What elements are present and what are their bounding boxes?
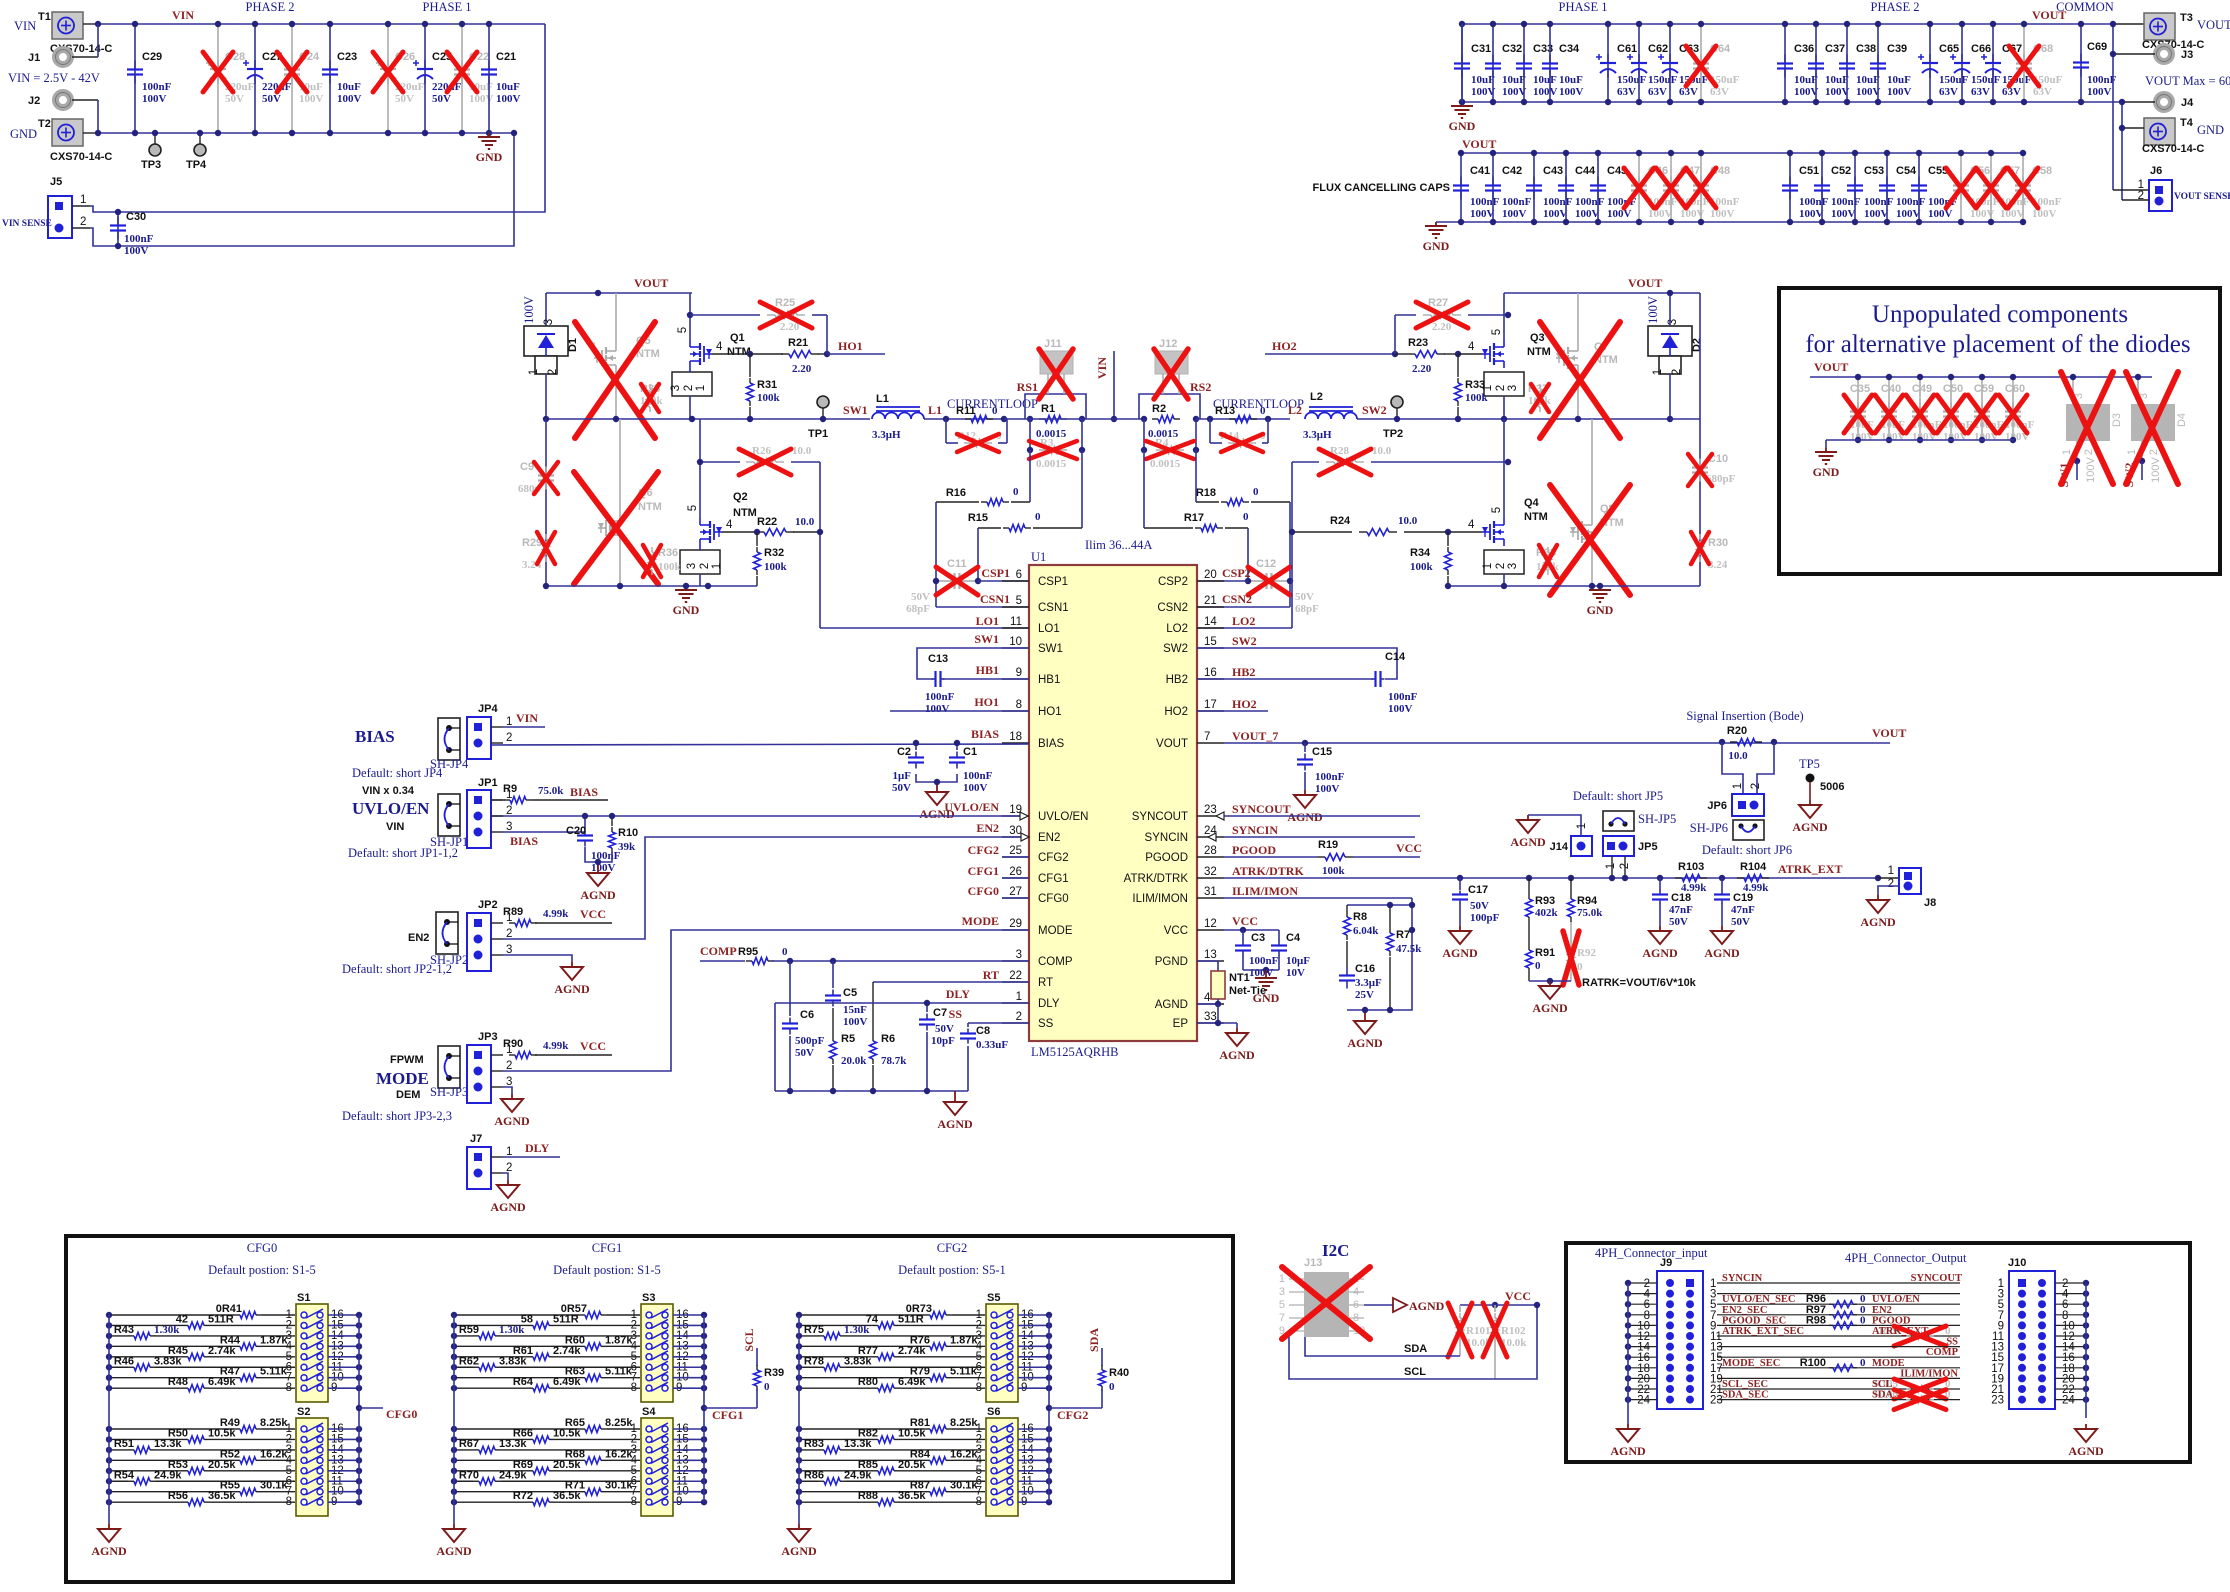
svg-text:100V: 100V [1710, 208, 1735, 220]
svg-text:R104: R104 [1740, 861, 1767, 873]
svg-text:100V: 100V [337, 93, 362, 105]
svg-text:50V: 50V [1669, 916, 1688, 928]
svg-text:0.0015: 0.0015 [1036, 458, 1067, 470]
svg-text:R11: R11 [956, 405, 976, 417]
svg-text:100V: 100V [1470, 208, 1495, 220]
svg-text:13: 13 [1204, 949, 1217, 961]
svg-text:CFG1: CFG1 [592, 1241, 623, 1255]
svg-text:J9: J9 [1660, 1257, 1672, 1269]
svg-text:R67: R67 [459, 1438, 479, 1450]
svg-text:1: 1 [1279, 1273, 1285, 1285]
svg-text:SS: SS [1038, 1018, 1054, 1030]
svg-text:5.11k: 5.11k [950, 1366, 978, 1378]
svg-text:4: 4 [726, 519, 733, 531]
svg-text:R32: R32 [764, 547, 784, 559]
svg-text:VOUT: VOUT [2032, 8, 2066, 22]
svg-text:2.74k: 2.74k [208, 1345, 236, 1357]
svg-text:BIAS: BIAS [1038, 738, 1065, 750]
svg-text:SH-JP6: SH-JP6 [1690, 821, 1728, 835]
svg-text:RT: RT [983, 968, 999, 982]
svg-text:C39: C39 [1887, 43, 1907, 55]
svg-text:ATRK/DTRK: ATRK/DTRK [1232, 864, 1304, 878]
svg-text:PGOOD: PGOOD [1145, 852, 1188, 864]
svg-text:C44: C44 [1575, 165, 1596, 177]
svg-text:CFG2: CFG2 [937, 1241, 968, 1255]
svg-text:23: 23 [1710, 1395, 1723, 1407]
svg-text:AGND: AGND [919, 807, 955, 821]
svg-text:S2: S2 [297, 1406, 310, 1418]
svg-text:75.0k: 75.0k [538, 785, 564, 797]
svg-text:63V: 63V [1710, 86, 1729, 98]
svg-text:1: 1 [1576, 823, 1588, 829]
svg-text:50V: 50V [262, 93, 281, 105]
svg-text:C52: C52 [1831, 165, 1851, 177]
svg-text:1.30k: 1.30k [499, 1324, 525, 1336]
svg-text:VIN: VIN [14, 19, 36, 33]
svg-text:C40: C40 [1881, 383, 1901, 395]
svg-text:S3: S3 [642, 1292, 655, 1304]
svg-text:8.25k: 8.25k [950, 1417, 978, 1429]
svg-text:VIN SENSE: VIN SENSE [2, 219, 52, 229]
svg-text:GND: GND [476, 150, 503, 164]
svg-text:2: 2 [683, 385, 695, 391]
svg-text:AGND: AGND [1610, 1444, 1646, 1458]
svg-text:D2: D2 [1691, 338, 1703, 352]
svg-text:AGND: AGND [436, 1544, 472, 1558]
svg-text:COMP: COMP [1038, 956, 1073, 968]
svg-text:100k: 100k [1410, 561, 1434, 573]
svg-text:1: 1 [1732, 783, 1744, 789]
svg-text:0: 0 [1253, 486, 1259, 498]
svg-text:39k: 39k [618, 841, 636, 853]
svg-text:R100: R100 [1800, 1357, 1826, 1369]
svg-text:R102: R102 [1501, 1325, 1526, 1337]
svg-text:COMP: COMP [1926, 1347, 1959, 1358]
svg-text:100V: 100V [963, 782, 988, 794]
svg-text:28: 28 [1204, 845, 1217, 857]
svg-text:0.0015: 0.0015 [1150, 458, 1181, 470]
svg-text:Q4: Q4 [1524, 497, 1540, 509]
svg-text:100nF: 100nF [1896, 196, 1926, 208]
svg-text:Ilim 36...44A: Ilim 36...44A [1085, 538, 1152, 552]
svg-text:20.5k: 20.5k [208, 1459, 236, 1471]
svg-text:VCC: VCC [1164, 925, 1188, 937]
svg-text:EN2: EN2 [1872, 1305, 1892, 1316]
svg-text:R13: R13 [1215, 405, 1235, 417]
svg-text:R72: R72 [513, 1490, 533, 1502]
svg-text:10uF: 10uF [1856, 74, 1880, 86]
svg-text:CSP2: CSP2 [1158, 576, 1188, 588]
svg-text:C23: C23 [337, 51, 357, 63]
svg-text:5.11k: 5.11k [260, 1366, 288, 1378]
svg-text:3.83k: 3.83k [154, 1355, 182, 1367]
svg-text:J13: J13 [1304, 1257, 1322, 1269]
svg-text:LO1: LO1 [1038, 623, 1060, 635]
svg-text:6.49k: 6.49k [208, 1376, 236, 1388]
svg-text:100V: 100V [1799, 208, 1824, 220]
svg-text:2: 2 [506, 928, 512, 940]
svg-text:100V: 100V [522, 296, 536, 324]
svg-text:VOUT: VOUT [1814, 360, 1848, 374]
svg-text:C20: C20 [566, 825, 586, 837]
svg-text:T4: T4 [2180, 117, 2194, 129]
svg-text:C6: C6 [800, 1009, 814, 1021]
svg-text:C62: C62 [1648, 43, 1668, 55]
svg-text:9: 9 [1016, 667, 1022, 679]
svg-text:0.33uF: 0.33uF [976, 1039, 1008, 1051]
svg-text:Q3: Q3 [1530, 332, 1545, 344]
svg-text:4.99k: 4.99k [1743, 882, 1769, 894]
svg-text:Q1: Q1 [730, 332, 745, 344]
svg-text:R34: R34 [1410, 547, 1431, 559]
svg-text:D3: D3 [2111, 413, 2123, 427]
svg-text:50V: 50V [892, 782, 911, 794]
svg-text:100V: 100V [469, 93, 494, 105]
svg-text:R88: R88 [858, 1490, 878, 1502]
svg-text:C69: C69 [2087, 41, 2107, 53]
svg-text:VIN = 2.5V - 42V: VIN = 2.5V - 42V [8, 71, 100, 85]
svg-text:L1: L1 [876, 393, 889, 405]
svg-text:100k: 100k [757, 392, 781, 404]
svg-text:6.04k: 6.04k [1353, 925, 1379, 937]
svg-text:100nF: 100nF [1543, 196, 1573, 208]
svg-text:C15: C15 [1312, 746, 1332, 758]
svg-text:30.1k: 30.1k [260, 1480, 288, 1492]
svg-text:2: 2 [1495, 385, 1507, 391]
svg-text:VOUT: VOUT [1628, 276, 1662, 290]
svg-text:1: 1 [1605, 863, 1617, 869]
svg-text:78.7k: 78.7k [881, 1055, 907, 1067]
svg-text:100V: 100V [1559, 86, 1584, 98]
svg-text:100V: 100V [1928, 208, 1953, 220]
svg-text:10uF: 10uF [496, 81, 520, 93]
svg-text:AGND: AGND [554, 982, 590, 996]
svg-text:100V: 100V [1648, 208, 1673, 220]
svg-text:24.9k: 24.9k [499, 1469, 527, 1481]
svg-text:0: 0 [764, 1381, 770, 1393]
svg-text:SH-JP5: SH-JP5 [1638, 812, 1676, 826]
svg-text:R103: R103 [1678, 861, 1704, 873]
svg-text:0: 0 [1109, 1381, 1115, 1393]
svg-text:BIAS: BIAS [570, 785, 598, 799]
svg-text:R25: R25 [775, 297, 795, 309]
svg-text:SW2: SW2 [1232, 634, 1257, 648]
svg-text:CFG0: CFG0 [247, 1241, 278, 1255]
svg-text:24.9k: 24.9k [844, 1469, 872, 1481]
svg-text:U1: U1 [1031, 550, 1046, 564]
svg-text:R62: R62 [459, 1355, 479, 1367]
svg-text:HO1: HO1 [838, 339, 863, 353]
svg-text:R5: R5 [841, 1033, 855, 1045]
svg-text:1: 1 [80, 194, 86, 206]
svg-text:AGND: AGND [1442, 946, 1478, 960]
svg-text:NTM: NTM [727, 346, 751, 358]
svg-text:10.0: 10.0 [795, 516, 815, 528]
svg-text:NTM: NTM [636, 348, 660, 360]
svg-text:Default: short JP5: Default: short JP5 [1573, 789, 1663, 803]
svg-text:2: 2 [506, 1060, 512, 1072]
svg-text:AGND: AGND [91, 1544, 127, 1558]
svg-text:2: 2 [506, 805, 512, 817]
svg-text:3.83k: 3.83k [499, 1355, 527, 1367]
svg-text:R54: R54 [114, 1469, 135, 1481]
svg-text:47nF: 47nF [1669, 904, 1693, 916]
svg-text:2: 2 [1016, 1011, 1022, 1023]
svg-text:100V: 100V [1831, 208, 1856, 220]
svg-text:1: 1 [1482, 563, 1494, 569]
svg-text:50V: 50V [911, 591, 930, 603]
svg-text:VOUT_7: VOUT_7 [1232, 729, 1278, 743]
svg-text:2: 2 [1888, 878, 1894, 890]
svg-text:HO2: HO2 [1164, 706, 1188, 718]
svg-text:UVLO/EN_SEC: UVLO/EN_SEC [1722, 1294, 1796, 1305]
svg-text:3: 3 [1507, 563, 1519, 569]
svg-text:SCL: SCL [742, 1328, 756, 1351]
svg-text:J5: J5 [50, 176, 62, 188]
svg-text:MODE_SEC: MODE_SEC [1722, 1358, 1780, 1369]
svg-text:2: 2 [2138, 190, 2144, 202]
svg-text:2: 2 [699, 563, 711, 569]
svg-text:SYNCOUT: SYNCOUT [1911, 1273, 1962, 1284]
svg-text:100nF: 100nF [1249, 955, 1279, 967]
svg-text:R43: R43 [114, 1324, 134, 1336]
svg-text:32: 32 [1204, 866, 1217, 878]
svg-text:R92: R92 [1577, 947, 1596, 959]
svg-text:DEM: DEM [396, 1089, 420, 1101]
svg-text:100nF: 100nF [2087, 74, 2117, 86]
svg-text:EN2: EN2 [976, 821, 999, 835]
svg-text:C65: C65 [1939, 43, 1959, 55]
svg-text:100nF: 100nF [1470, 196, 1500, 208]
svg-text:6.49k: 6.49k [898, 1376, 926, 1388]
svg-text:100V: 100V [2085, 456, 2097, 482]
svg-text:MODE: MODE [1872, 1358, 1905, 1369]
svg-text:AGND: AGND [494, 1114, 530, 1128]
svg-text:100nF: 100nF [925, 691, 955, 703]
svg-text:Default: short JP6: Default: short JP6 [1702, 843, 1792, 857]
svg-text:TP5: TP5 [1799, 757, 1820, 771]
svg-text:JP4: JP4 [478, 703, 498, 715]
svg-text:VIN: VIN [1095, 357, 1109, 379]
svg-text:R18: R18 [1196, 487, 1216, 499]
svg-text:I2C: I2C [1322, 1241, 1349, 1260]
svg-text:C37: C37 [1825, 43, 1845, 55]
svg-text:5: 5 [1491, 329, 1503, 335]
svg-text:R98: R98 [1806, 1314, 1826, 1326]
svg-text:CFG2: CFG2 [1057, 1408, 1088, 1422]
svg-text:10.0: 10.0 [1398, 515, 1418, 527]
svg-text:100V: 100V [1315, 783, 1340, 795]
svg-text:CFG2: CFG2 [968, 843, 999, 857]
svg-text:4: 4 [1468, 341, 1475, 353]
svg-text:R16: R16 [946, 487, 966, 499]
svg-text:2: 2 [2148, 449, 2160, 455]
svg-text:2.20: 2.20 [1412, 363, 1432, 375]
svg-text:C60: C60 [2005, 383, 2025, 395]
svg-text:R22: R22 [757, 516, 777, 528]
svg-text:1.87k: 1.87k [260, 1334, 288, 1346]
svg-text:ATRK_EXT_SEC: ATRK_EXT_SEC [1722, 1326, 1804, 1337]
svg-text:R20: R20 [1727, 725, 1747, 737]
svg-text:50V: 50V [1295, 591, 1314, 603]
svg-text:12: 12 [1204, 918, 1217, 930]
svg-text:2: 2 [1671, 369, 1683, 375]
svg-text:4: 4 [1353, 1286, 1359, 1298]
svg-text:J3: J3 [2181, 49, 2193, 61]
svg-text:10uF: 10uF [1533, 74, 1557, 86]
svg-text:CFG0: CFG0 [1038, 893, 1069, 905]
svg-text:10.5k: 10.5k [898, 1427, 926, 1439]
svg-text:1: 1 [695, 385, 707, 391]
svg-text:AGND: AGND [1347, 1036, 1383, 1050]
svg-text:UVLO/EN: UVLO/EN [352, 799, 430, 818]
svg-text:J10: J10 [2008, 1257, 2026, 1269]
svg-text:GND: GND [2197, 123, 2224, 137]
svg-text:SYNCOUT: SYNCOUT [1132, 811, 1188, 823]
svg-text:AGND: AGND [2068, 1444, 2104, 1458]
svg-text:AGND: AGND [490, 1200, 526, 1214]
svg-text:ILIM/IMON: ILIM/IMON [1232, 884, 1298, 898]
svg-text:S5: S5 [987, 1292, 1000, 1304]
svg-text:R90: R90 [503, 1038, 523, 1050]
svg-text:10V: 10V [1286, 967, 1305, 979]
svg-text:GND: GND [1423, 239, 1450, 253]
svg-text:13.3k: 13.3k [154, 1438, 182, 1450]
svg-text:100V: 100V [2150, 456, 2162, 482]
svg-text:SW1: SW1 [974, 632, 999, 646]
svg-text:Default postion: S1-5: Default postion: S1-5 [553, 1263, 661, 1277]
svg-text:100V: 100V [1887, 86, 1912, 98]
svg-text:CSN2: CSN2 [1222, 592, 1252, 606]
svg-text:100V: 100V [2000, 208, 2025, 220]
svg-text:LO1: LO1 [976, 614, 999, 628]
svg-text:Unpopulated components: Unpopulated components [1872, 301, 2128, 328]
svg-text:100nF: 100nF [124, 233, 154, 245]
svg-text:LM5125AQRHB: LM5125AQRHB [1031, 1045, 1119, 1059]
svg-text:100nF: 100nF [1315, 771, 1345, 783]
svg-text:50V: 50V [795, 1047, 814, 1059]
svg-text:3: 3 [543, 319, 555, 325]
svg-text:RT: RT [1038, 977, 1053, 989]
svg-text:VCC: VCC [1396, 841, 1422, 855]
svg-text:0: 0 [1577, 961, 1583, 973]
svg-text:100k: 100k [764, 561, 788, 573]
svg-text:R24: R24 [1330, 515, 1351, 527]
svg-text:C13: C13 [928, 653, 948, 665]
svg-text:C49: C49 [1912, 383, 1932, 395]
svg-text:J14: J14 [1550, 841, 1569, 853]
svg-text:3.3μH: 3.3μH [872, 429, 901, 441]
svg-text:16: 16 [1204, 667, 1217, 679]
svg-text:S4: S4 [642, 1406, 656, 1418]
svg-text:63V: 63V [1939, 86, 1958, 98]
svg-text:ILIM/IMON: ILIM/IMON [1132, 893, 1188, 905]
svg-text:100pF: 100pF [1470, 912, 1500, 924]
svg-text:RS2: RS2 [1190, 380, 1211, 394]
svg-text:C17: C17 [1468, 884, 1488, 896]
svg-text:SW2: SW2 [1362, 403, 1387, 417]
svg-text:VOUT: VOUT [634, 276, 668, 290]
svg-text:SDA: SDA [1404, 1343, 1427, 1355]
svg-text:3: 3 [506, 821, 512, 833]
svg-text:GND: GND [1813, 465, 1840, 479]
svg-text:C2: C2 [897, 746, 911, 758]
svg-text:HO1: HO1 [974, 695, 999, 709]
svg-text:1: 1 [528, 369, 540, 375]
svg-text:HO2: HO2 [1272, 339, 1297, 353]
svg-text:HB1: HB1 [976, 663, 999, 677]
svg-text:CSP1: CSP1 [981, 566, 1010, 580]
svg-text:50V: 50V [225, 93, 244, 105]
svg-text:29: 29 [1009, 918, 1022, 930]
svg-text:2: 2 [506, 732, 512, 744]
svg-text:D1: D1 [567, 338, 579, 352]
svg-text:R51: R51 [114, 1438, 134, 1450]
svg-text:AGND: AGND [1287, 810, 1323, 824]
svg-text:C29: C29 [142, 51, 162, 63]
svg-text:CSP2: CSP2 [1222, 566, 1251, 580]
svg-text:63V: 63V [1617, 86, 1636, 98]
svg-text:VCC: VCC [1232, 914, 1258, 928]
svg-text:63V: 63V [2002, 86, 2021, 98]
svg-text:SCL_SEC: SCL_SEC [1722, 1379, 1768, 1390]
svg-text:3: 3 [1016, 949, 1022, 961]
svg-text:JP3: JP3 [478, 1031, 498, 1043]
svg-text:SCL: SCL [1404, 1366, 1426, 1378]
svg-text:36.5k: 36.5k [898, 1490, 926, 1502]
svg-text:1: 1 [2126, 449, 2138, 455]
svg-text:R8: R8 [1353, 911, 1367, 923]
svg-text:0: 0 [1260, 405, 1266, 417]
svg-text:15: 15 [1204, 636, 1217, 648]
svg-text:100V: 100V [925, 703, 950, 715]
svg-text:S6: S6 [987, 1406, 1000, 1418]
svg-text:100k: 100k [1465, 392, 1489, 404]
svg-text:C34: C34 [1559, 43, 1580, 55]
svg-text:BIAS: BIAS [971, 727, 999, 741]
svg-text:AGND: AGND [1409, 1299, 1445, 1313]
svg-text:30.1k: 30.1k [605, 1480, 633, 1492]
svg-text:36.5k: 36.5k [208, 1490, 236, 1502]
svg-text:for alternative placement of t: for alternative placement of the diodes [1805, 331, 2190, 358]
svg-text:VOUT: VOUT [2197, 18, 2230, 32]
svg-text:R48: R48 [168, 1376, 188, 1388]
svg-text:100V: 100V [1471, 86, 1496, 98]
svg-text:VOUT: VOUT [1872, 726, 1906, 740]
svg-text:7: 7 [1279, 1312, 1285, 1324]
svg-text:COMP: COMP [700, 944, 737, 958]
svg-text:SH-JP1: SH-JP1 [430, 835, 468, 849]
svg-text:J8: J8 [1924, 897, 1936, 909]
svg-text:VOUT: VOUT [1462, 137, 1496, 151]
svg-text:50V: 50V [1731, 916, 1750, 928]
svg-text:SW2: SW2 [1163, 643, 1188, 655]
svg-text:CSN1: CSN1 [980, 592, 1010, 606]
svg-text:AGND: AGND [781, 1544, 817, 1558]
svg-text:0: 0 [782, 946, 788, 958]
svg-text:R39: R39 [764, 1367, 784, 1379]
svg-text:R17: R17 [1184, 512, 1204, 524]
svg-text:SYNCIN: SYNCIN [1722, 1273, 1763, 1284]
svg-text:100V: 100V [1502, 208, 1527, 220]
svg-text:4: 4 [1468, 519, 1475, 531]
svg-text:J4: J4 [2181, 97, 2194, 109]
svg-text:20.5k: 20.5k [898, 1459, 926, 1471]
svg-text:AGND: AGND [1642, 946, 1678, 960]
svg-text:50V: 50V [432, 93, 451, 105]
svg-text:6: 6 [1016, 569, 1022, 581]
svg-text:VOUT: VOUT [1156, 738, 1188, 750]
